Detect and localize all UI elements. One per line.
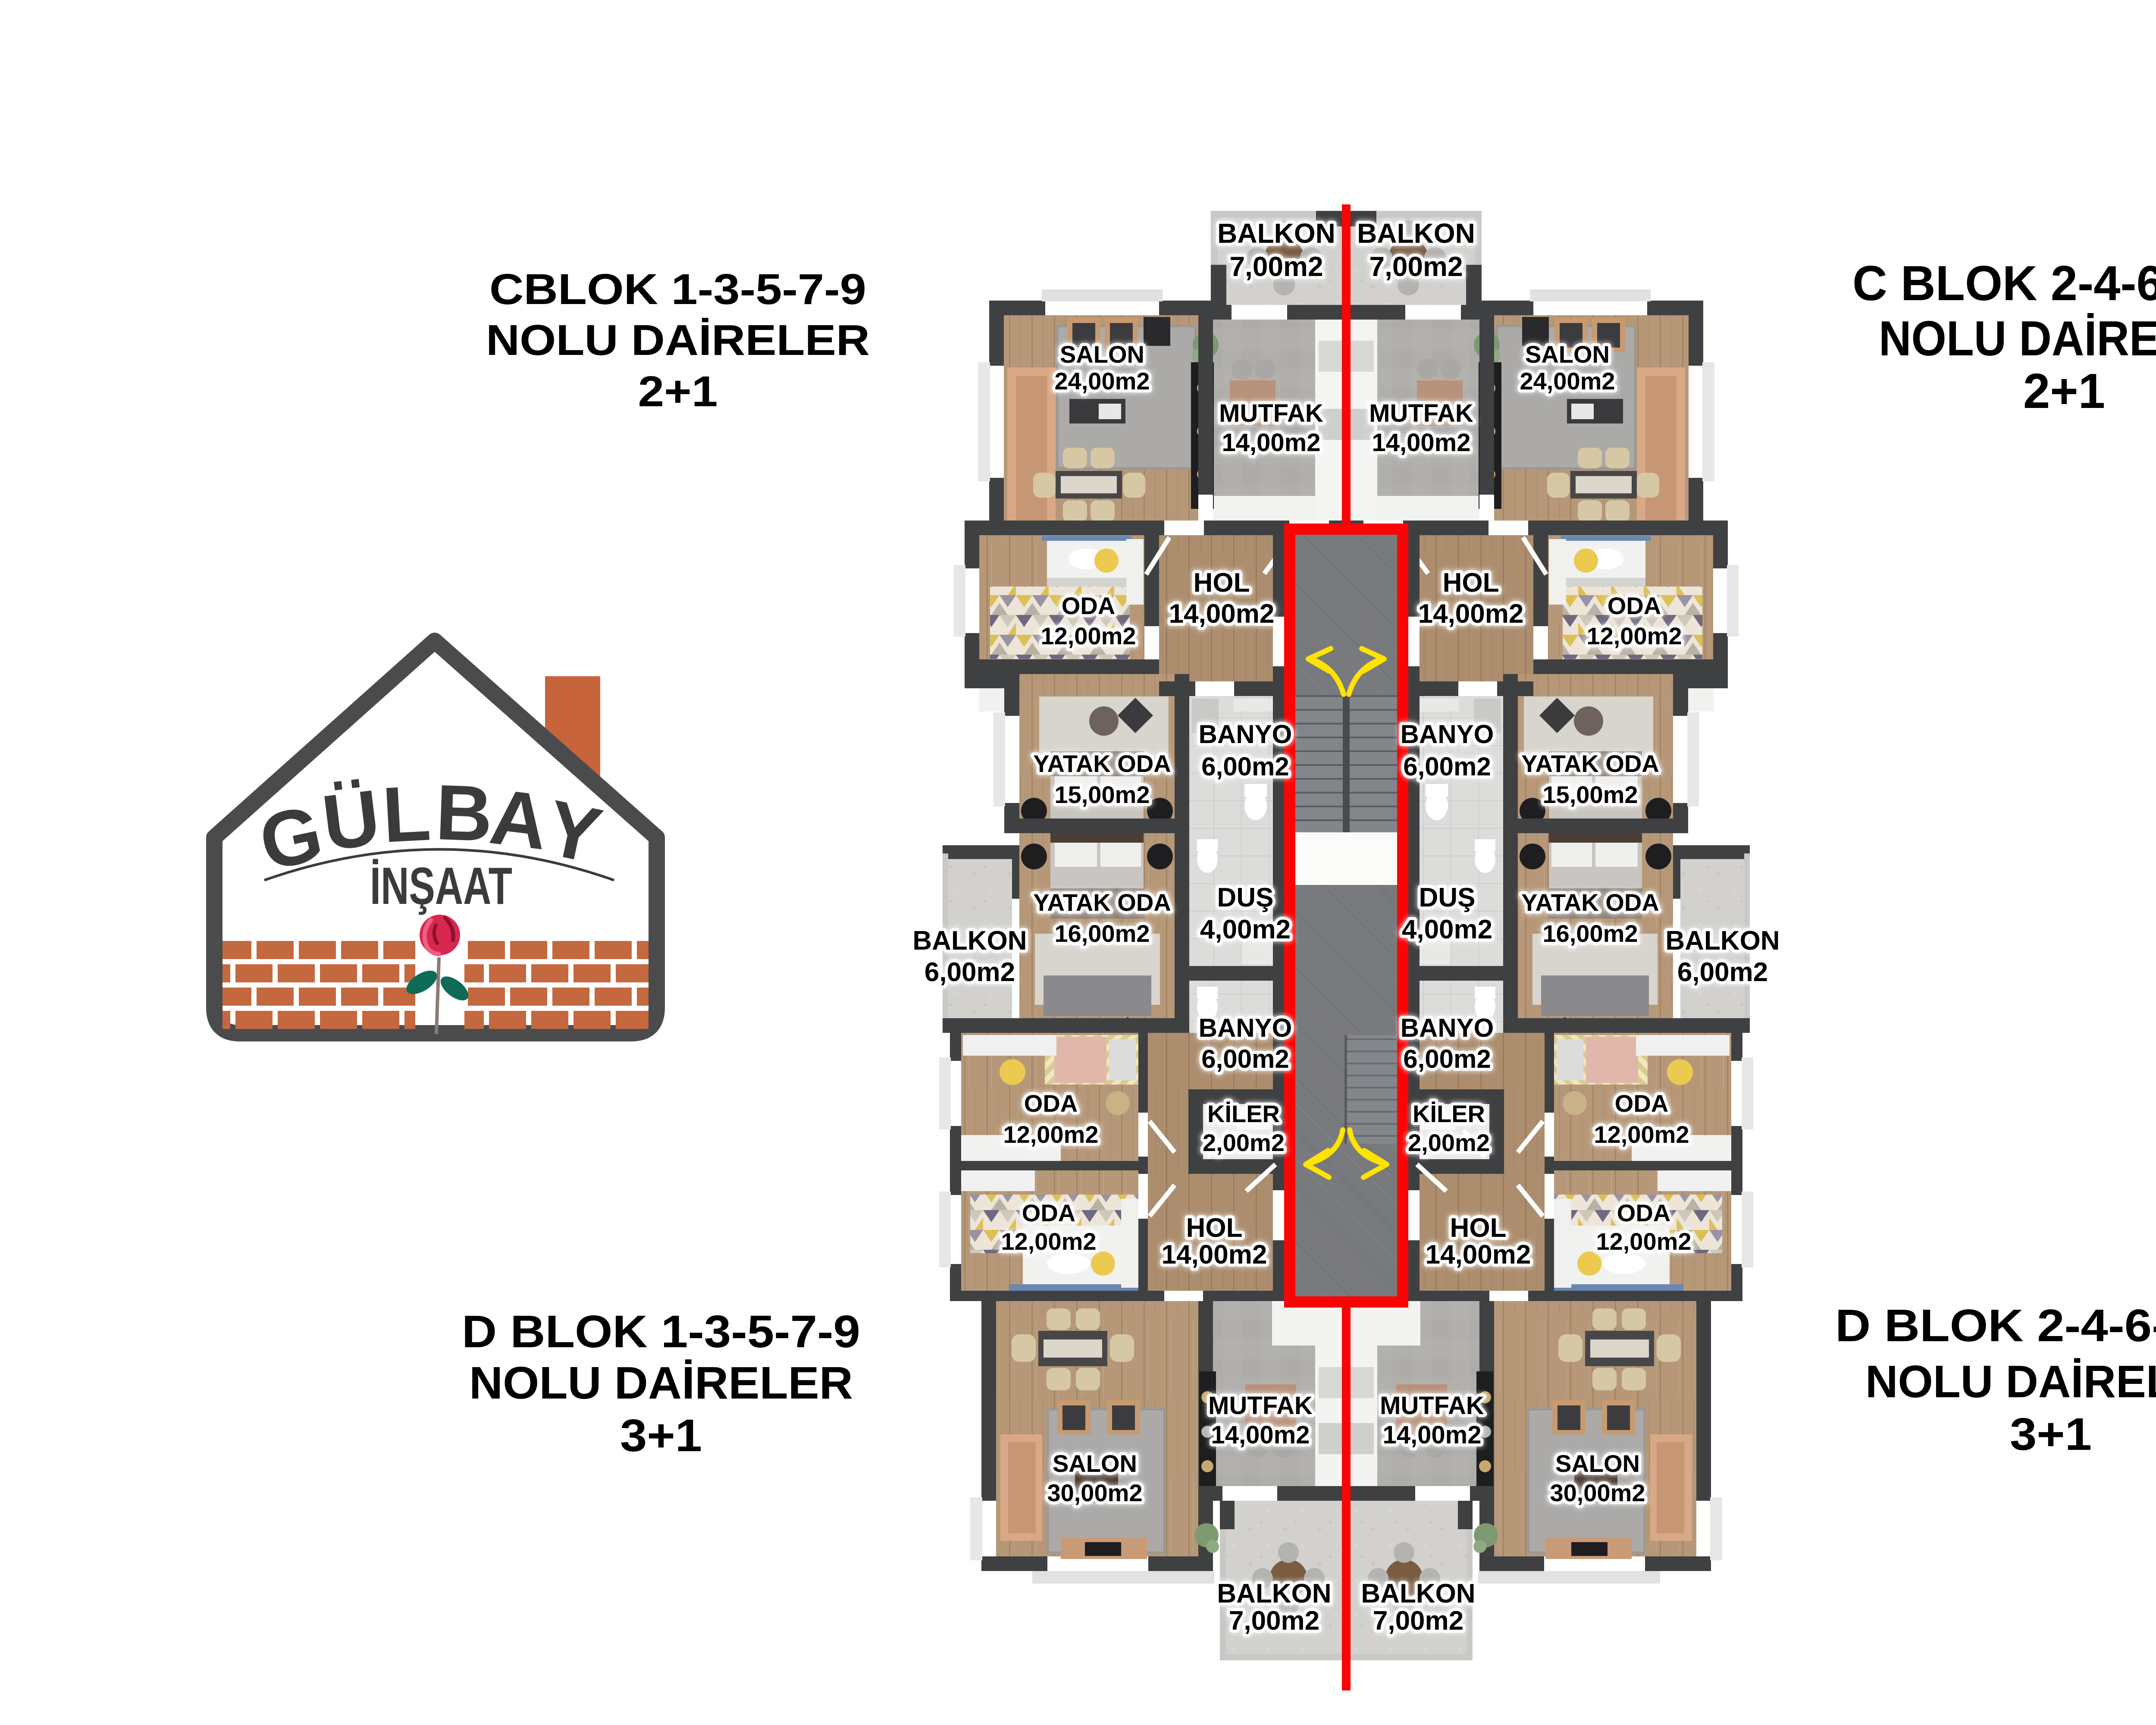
svg-text:6,00m2: 6,00m2 [1201,1044,1289,1073]
svg-text:ODA: ODA [1617,1199,1670,1226]
svg-text:12,00m2: 12,00m2 [1594,1121,1689,1148]
svg-text:2+1: 2+1 [2023,364,2105,419]
svg-text:HOL: HOL [1443,568,1499,598]
svg-text:14,00m2: 14,00m2 [1372,429,1471,457]
svg-text:KİLER: KİLER [1413,1100,1485,1127]
svg-text:NOLU DAİRELER: NOLU DAİRELER [1879,311,2156,366]
svg-text:6,00m2: 6,00m2 [924,957,1015,987]
svg-text:ODA: ODA [1024,1090,1078,1117]
svg-text:NOLU DAİRELER: NOLU DAİRELER [486,316,870,364]
svg-text:14,00m2: 14,00m2 [1162,1240,1267,1270]
svg-text:DUŞ: DUŞ [1419,883,1476,913]
svg-text:CBLOK 1-3-5-7-9: CBLOK 1-3-5-7-9 [489,265,866,314]
svg-text:6,00m2: 6,00m2 [1403,752,1491,781]
svg-text:BALKON: BALKON [1665,926,1780,956]
svg-text:12,00m2: 12,00m2 [1040,622,1136,649]
svg-text:4,00m2: 4,00m2 [1402,915,1492,944]
svg-text:L: L [380,768,433,859]
svg-text:B: B [434,768,494,858]
svg-text:2,00m2: 2,00m2 [1203,1129,1285,1156]
svg-text:HOL: HOL [1450,1213,1507,1243]
svg-text:15,00m2: 15,00m2 [1542,781,1638,808]
svg-text:6,00m2: 6,00m2 [1403,1044,1491,1073]
svg-text:16,00m2: 16,00m2 [1054,920,1150,947]
svg-text:30,00m2: 30,00m2 [1047,1479,1142,1506]
svg-text:7,00m2: 7,00m2 [1229,251,1323,282]
svg-text:12,00m2: 12,00m2 [1003,1121,1098,1148]
svg-text:14,00m2: 14,00m2 [1169,599,1275,629]
svg-text:7,00m2: 7,00m2 [1369,251,1463,282]
svg-text:NOLU DAİRELER: NOLU DAİRELER [469,1358,853,1408]
svg-text:MUTFAK: MUTFAK [1219,399,1323,427]
svg-text:NOLU DAİRELER: NOLU DAİRELER [1865,1356,2156,1407]
svg-text:14,00m2: 14,00m2 [1418,599,1524,629]
svg-text:ODA: ODA [1608,592,1661,619]
svg-text:14,00m2: 14,00m2 [1426,1240,1531,1270]
svg-text:D BLOK 1-3-5-7-9: D BLOK 1-3-5-7-9 [462,1306,860,1357]
svg-text:14,00m2: 14,00m2 [1211,1421,1310,1449]
svg-text:C BLOK 2-4-6-8-10: C BLOK 2-4-6-8-10 [1852,256,2156,311]
svg-text:SALON: SALON [1555,1450,1640,1477]
svg-text:SALON: SALON [1525,341,1610,368]
svg-text:3+1: 3+1 [2010,1409,2092,1460]
svg-text:DUŞ: DUŞ [1217,883,1274,913]
svg-text:BANYO: BANYO [1199,720,1292,749]
svg-text:12,00m2: 12,00m2 [1586,622,1682,649]
svg-text:3+1: 3+1 [620,1410,702,1461]
svg-text:14,00m2: 14,00m2 [1383,1421,1482,1449]
svg-text:SALON: SALON [1060,341,1144,368]
svg-text:BALKON: BALKON [1217,1579,1331,1609]
svg-text:2,00m2: 2,00m2 [1408,1129,1490,1156]
svg-text:MUTFAK: MUTFAK [1380,1392,1484,1420]
svg-text:ODA: ODA [1062,592,1115,619]
svg-text:MUTFAK: MUTFAK [1369,399,1473,427]
svg-text:BALKON: BALKON [912,926,1027,956]
svg-text:D BLOK 2-4-6-8-10: D BLOK 2-4-6-8-10 [1835,1300,2156,1351]
svg-text:HOL: HOL [1186,1213,1243,1243]
svg-text:6,00m2: 6,00m2 [1677,957,1768,987]
svg-text:İNŞAAT: İNŞAAT [370,856,512,915]
svg-text:4,00m2: 4,00m2 [1200,915,1291,944]
svg-text:YATAK ODA: YATAK ODA [1033,750,1171,777]
svg-text:16,00m2: 16,00m2 [1542,920,1638,947]
svg-text:BANYO: BANYO [1199,1013,1292,1042]
svg-text:BANYO: BANYO [1401,1013,1494,1042]
svg-text:HOL: HOL [1194,568,1250,598]
svg-text:7,00m2: 7,00m2 [1229,1606,1319,1636]
svg-text:ODA: ODA [1022,1199,1075,1226]
svg-text:24,00m2: 24,00m2 [1054,367,1150,395]
svg-text:YATAK ODA: YATAK ODA [1521,889,1659,916]
svg-text:KİLER: KİLER [1207,1100,1280,1127]
svg-text:30,00m2: 30,00m2 [1550,1479,1645,1506]
svg-text:7,00m2: 7,00m2 [1373,1606,1463,1636]
svg-text:15,00m2: 15,00m2 [1054,781,1150,808]
svg-text:BALKON: BALKON [1357,218,1475,249]
svg-text:SALON: SALON [1053,1450,1137,1477]
svg-text:MUTFAK: MUTFAK [1208,1392,1313,1420]
svg-text:12,00m2: 12,00m2 [1596,1228,1691,1255]
svg-text:BALKON: BALKON [1361,1579,1475,1609]
svg-text:14,00m2: 14,00m2 [1222,429,1321,457]
svg-text:YATAK ODA: YATAK ODA [1521,750,1659,777]
svg-text:12,00m2: 12,00m2 [1001,1228,1096,1255]
svg-text:BANYO: BANYO [1401,720,1494,749]
svg-text:YATAK ODA: YATAK ODA [1033,889,1171,916]
svg-text:24,00m2: 24,00m2 [1520,367,1615,395]
svg-text:6,00m2: 6,00m2 [1201,752,1289,781]
svg-text:BALKON: BALKON [1217,218,1335,249]
svg-text:2+1: 2+1 [638,367,718,416]
svg-text:ODA: ODA [1615,1090,1668,1117]
